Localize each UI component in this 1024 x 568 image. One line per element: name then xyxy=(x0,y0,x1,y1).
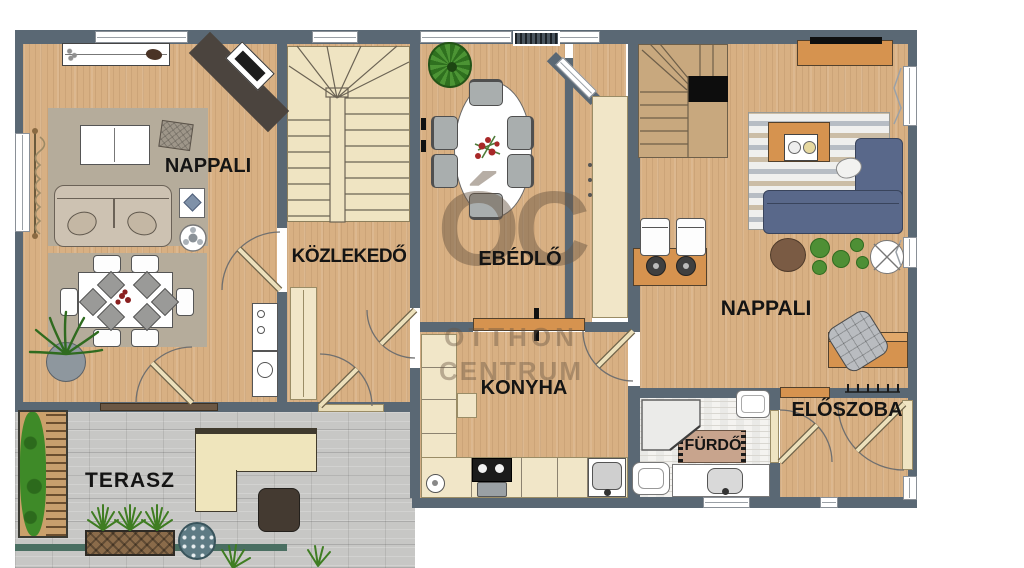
oven-front xyxy=(477,482,507,497)
kitchen-counter-left xyxy=(421,334,457,470)
window-top-living-left xyxy=(95,31,188,43)
chair-back xyxy=(131,329,159,347)
hedge-pergola xyxy=(18,410,68,538)
plant-bush xyxy=(832,250,850,268)
decor-flowers xyxy=(66,47,78,61)
wall-kitchen-bottom xyxy=(412,498,640,508)
radiator-dash xyxy=(421,140,426,152)
plant-pot xyxy=(46,342,86,382)
sink-basin xyxy=(592,462,622,490)
plant-center xyxy=(447,62,457,72)
tv-flat xyxy=(810,37,882,44)
threshold-living-entry xyxy=(780,387,830,398)
chair-back xyxy=(60,288,78,316)
window-right-entry xyxy=(903,476,917,500)
side-table xyxy=(179,188,205,218)
dining-chair xyxy=(469,193,503,220)
room-label-bathroom: FÜRDŐ xyxy=(680,437,746,455)
sofa-back xyxy=(57,187,169,199)
place-setting xyxy=(646,256,666,276)
toilet xyxy=(632,462,670,495)
loveseat-sofa xyxy=(54,185,172,247)
chair-back xyxy=(93,329,121,347)
plant-bush xyxy=(810,238,830,258)
hall-cabinet xyxy=(290,287,317,400)
console-divider xyxy=(114,128,115,162)
outdoor-sofa-seat xyxy=(195,428,317,472)
radiator-dining-top xyxy=(513,31,560,46)
decor-bowl xyxy=(145,47,164,63)
wall-hall-kitchen-a xyxy=(410,44,420,308)
outdoor-sofa-back xyxy=(196,429,316,434)
dining-chair xyxy=(469,79,503,106)
window-bottom-entry xyxy=(820,497,838,508)
radiator-dash xyxy=(534,330,539,341)
plant-bush xyxy=(812,260,827,275)
bistro-chair xyxy=(676,218,706,256)
closet-pantry xyxy=(592,96,628,318)
wall-bath-entry-a xyxy=(770,398,780,410)
coffee-table-right xyxy=(768,122,830,162)
outdoor-sofa-chaise xyxy=(195,470,237,512)
vanity-faucet xyxy=(722,488,729,495)
wall-living-hall-b xyxy=(277,292,287,402)
sink-faucet xyxy=(604,489,611,496)
garden-table-round xyxy=(870,240,904,274)
chair-back xyxy=(93,255,121,273)
sofa-cushion-right xyxy=(124,208,160,239)
place-setting xyxy=(676,256,696,276)
wall-kitchen-top-a xyxy=(420,322,473,332)
window-top-dining-b xyxy=(556,31,600,43)
floor-pillow xyxy=(158,120,193,151)
plate xyxy=(788,141,801,154)
plant-bush xyxy=(850,238,864,252)
washer-drum xyxy=(257,362,273,378)
threshold-dining-kitchen xyxy=(473,318,585,331)
room-label-terrace: TERASZ xyxy=(84,469,176,493)
stove-cooktop xyxy=(472,458,512,482)
window-right-living-b xyxy=(903,237,917,268)
chair-backrest xyxy=(678,220,704,228)
room-label-hallway: KÖZLEKEDŐ xyxy=(284,246,414,268)
dining-chair xyxy=(431,154,458,188)
staircase-hallway xyxy=(287,46,410,222)
room-label-dining: EBÉDLŐ xyxy=(466,248,574,271)
wall-bottom-right-block xyxy=(630,497,917,508)
sofa-seat-divider xyxy=(113,199,115,228)
appliance-knob xyxy=(257,326,265,334)
outdoor-coffee-table xyxy=(258,488,300,532)
planter-box xyxy=(85,530,175,556)
sideboard xyxy=(62,43,170,66)
room-label-living-right: NAPPALI xyxy=(712,297,820,321)
tv-console-table xyxy=(80,125,150,165)
wall-livingr-entry-b xyxy=(830,388,908,398)
plate xyxy=(803,141,816,154)
floorplan-canvas: ÓC OTTHON CENTRUM NAPPALI KÖZLEKEDŐ EBÉD… xyxy=(0,0,1024,568)
room-label-kitchen: KONYHA xyxy=(470,377,578,400)
wall-kitchen-top-b xyxy=(585,322,628,332)
sofa-cushion-left xyxy=(64,208,100,239)
serving-tray xyxy=(784,134,818,161)
room-label-living-left: NAPPALI xyxy=(158,155,258,178)
kitchen-sink xyxy=(588,458,626,497)
bath-washbasin-top xyxy=(736,390,770,418)
bistro-chair xyxy=(640,218,670,256)
pouf-brown xyxy=(770,238,806,272)
threshold-hall-terrace xyxy=(318,404,384,412)
window-top-hallway xyxy=(312,31,358,43)
wall-bath-entry-b xyxy=(770,463,780,497)
appliance-column xyxy=(252,303,278,397)
wall-dining-right xyxy=(565,58,573,322)
dining-chair xyxy=(431,116,458,150)
chair-backrest xyxy=(642,220,668,228)
radiator-dash xyxy=(421,118,426,130)
threshold-living-terrace xyxy=(100,403,218,411)
wall-hall-kitchen-b xyxy=(410,368,420,498)
appliance-divider xyxy=(253,350,277,352)
plant-bush xyxy=(856,256,869,269)
window-right-living-a xyxy=(903,66,917,126)
cabinet-divider xyxy=(303,290,304,397)
chair-back xyxy=(131,255,159,273)
plant-large xyxy=(428,42,472,88)
window-top-dining-a xyxy=(420,31,512,43)
window-left-living xyxy=(15,133,30,232)
sofa-seat-line xyxy=(767,203,899,204)
side-table-decor xyxy=(183,193,201,211)
window-bottom-bath xyxy=(703,497,750,508)
appliance-knob xyxy=(257,310,265,318)
pergola-slats xyxy=(46,412,66,536)
kitchen-plate xyxy=(426,474,445,493)
stair-landing-dark xyxy=(688,76,728,102)
hedge-green xyxy=(20,412,46,536)
dining-chair xyxy=(507,116,534,150)
wall-living-hall-a xyxy=(277,44,287,228)
radiator-dash xyxy=(534,308,539,319)
bath-vanity xyxy=(672,464,770,497)
dining-chair xyxy=(507,154,534,188)
door-leaf-bathroom xyxy=(770,410,779,463)
flowering-bush xyxy=(178,522,216,560)
floor-corridor-strip xyxy=(573,96,592,322)
room-label-entry: ELŐSZOBA xyxy=(782,399,912,422)
sofa-sectional-seat xyxy=(763,190,903,234)
